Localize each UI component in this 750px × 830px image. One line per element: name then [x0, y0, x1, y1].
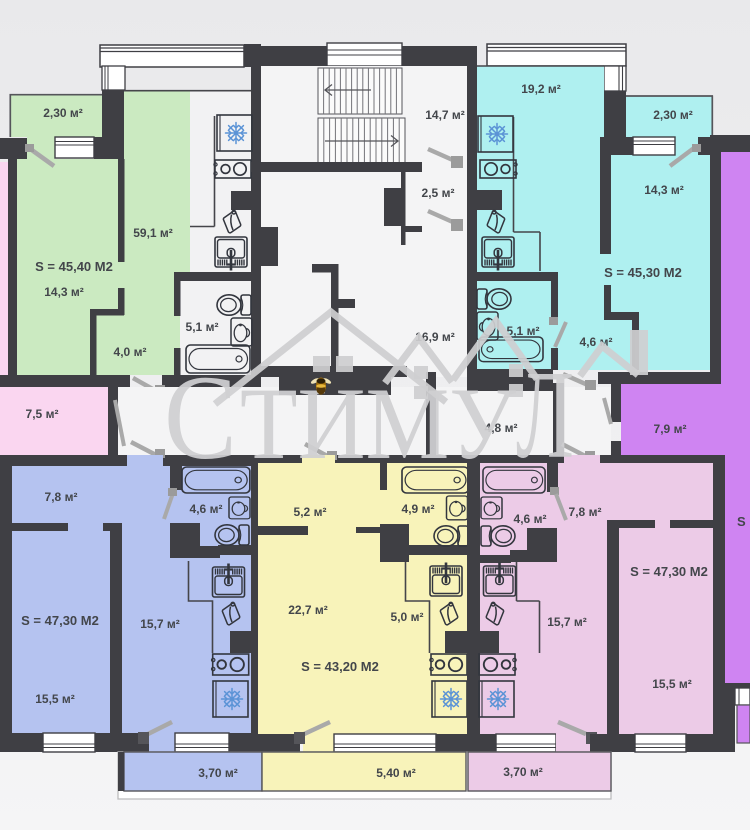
- svg-text:5,40 м²: 5,40 м²: [376, 766, 416, 780]
- svg-text:15,5 м²: 15,5 м²: [652, 677, 692, 691]
- svg-text:7,9 м²: 7,9 м²: [654, 422, 687, 436]
- svg-text:14,3 м²: 14,3 м²: [44, 285, 84, 299]
- svg-text:2,30 м²: 2,30 м²: [43, 106, 83, 120]
- svg-text:5,0 м²: 5,0 м²: [391, 610, 424, 624]
- svg-text:S = 45,40 M2: S = 45,40 M2: [35, 259, 113, 274]
- svg-text:7,8 м²: 7,8 м²: [569, 505, 602, 519]
- svg-text:С: С: [164, 351, 237, 485]
- svg-text:S = 47,30 M2: S = 47,30 M2: [630, 564, 708, 579]
- svg-text:2,30 м²: 2,30 м²: [653, 108, 693, 122]
- svg-text:15,7 м²: 15,7 м²: [547, 615, 587, 629]
- svg-text:4,6 м²: 4,6 м²: [514, 512, 547, 526]
- svg-text:2,5 м²: 2,5 м²: [422, 186, 455, 200]
- svg-text:S = 47,30 M2: S = 47,30 M2: [21, 613, 99, 628]
- svg-text:59,1 м²: 59,1 м²: [133, 226, 173, 240]
- svg-text:5,2 м²: 5,2 м²: [294, 505, 327, 519]
- svg-text:4,0 м²: 4,0 м²: [114, 345, 147, 359]
- svg-text:Л: Л: [516, 346, 574, 485]
- svg-text:14,3 м²: 14,3 м²: [644, 183, 684, 197]
- svg-text:5,1 м²: 5,1 м²: [507, 324, 540, 338]
- svg-text:4,9 м²: 4,9 м²: [402, 502, 435, 516]
- svg-text:7,5 м²: 7,5 м²: [26, 407, 59, 421]
- svg-text:ТИМУ: ТИМУ: [240, 367, 516, 481]
- svg-text:S: S: [737, 514, 746, 529]
- svg-text:19,2 м²: 19,2 м²: [521, 82, 561, 96]
- svg-text:7,8 м²: 7,8 м²: [45, 490, 78, 504]
- svg-text:3,70 м²: 3,70 м²: [198, 766, 238, 780]
- svg-text:14,7 м²: 14,7 м²: [425, 108, 465, 122]
- svg-text:S = 45,30 M2: S = 45,30 M2: [604, 265, 682, 280]
- svg-text:15,5 м²: 15,5 м²: [35, 692, 75, 706]
- svg-text:S = 43,20 M2: S = 43,20 M2: [301, 659, 379, 674]
- svg-text:15,7 м²: 15,7 м²: [140, 617, 180, 631]
- svg-text:5,1 м²: 5,1 м²: [186, 320, 219, 334]
- svg-text:4,6 м²: 4,6 м²: [190, 502, 223, 516]
- svg-text:3,70 м²: 3,70 м²: [503, 765, 543, 779]
- svg-text:22,7 м²: 22,7 м²: [288, 603, 328, 617]
